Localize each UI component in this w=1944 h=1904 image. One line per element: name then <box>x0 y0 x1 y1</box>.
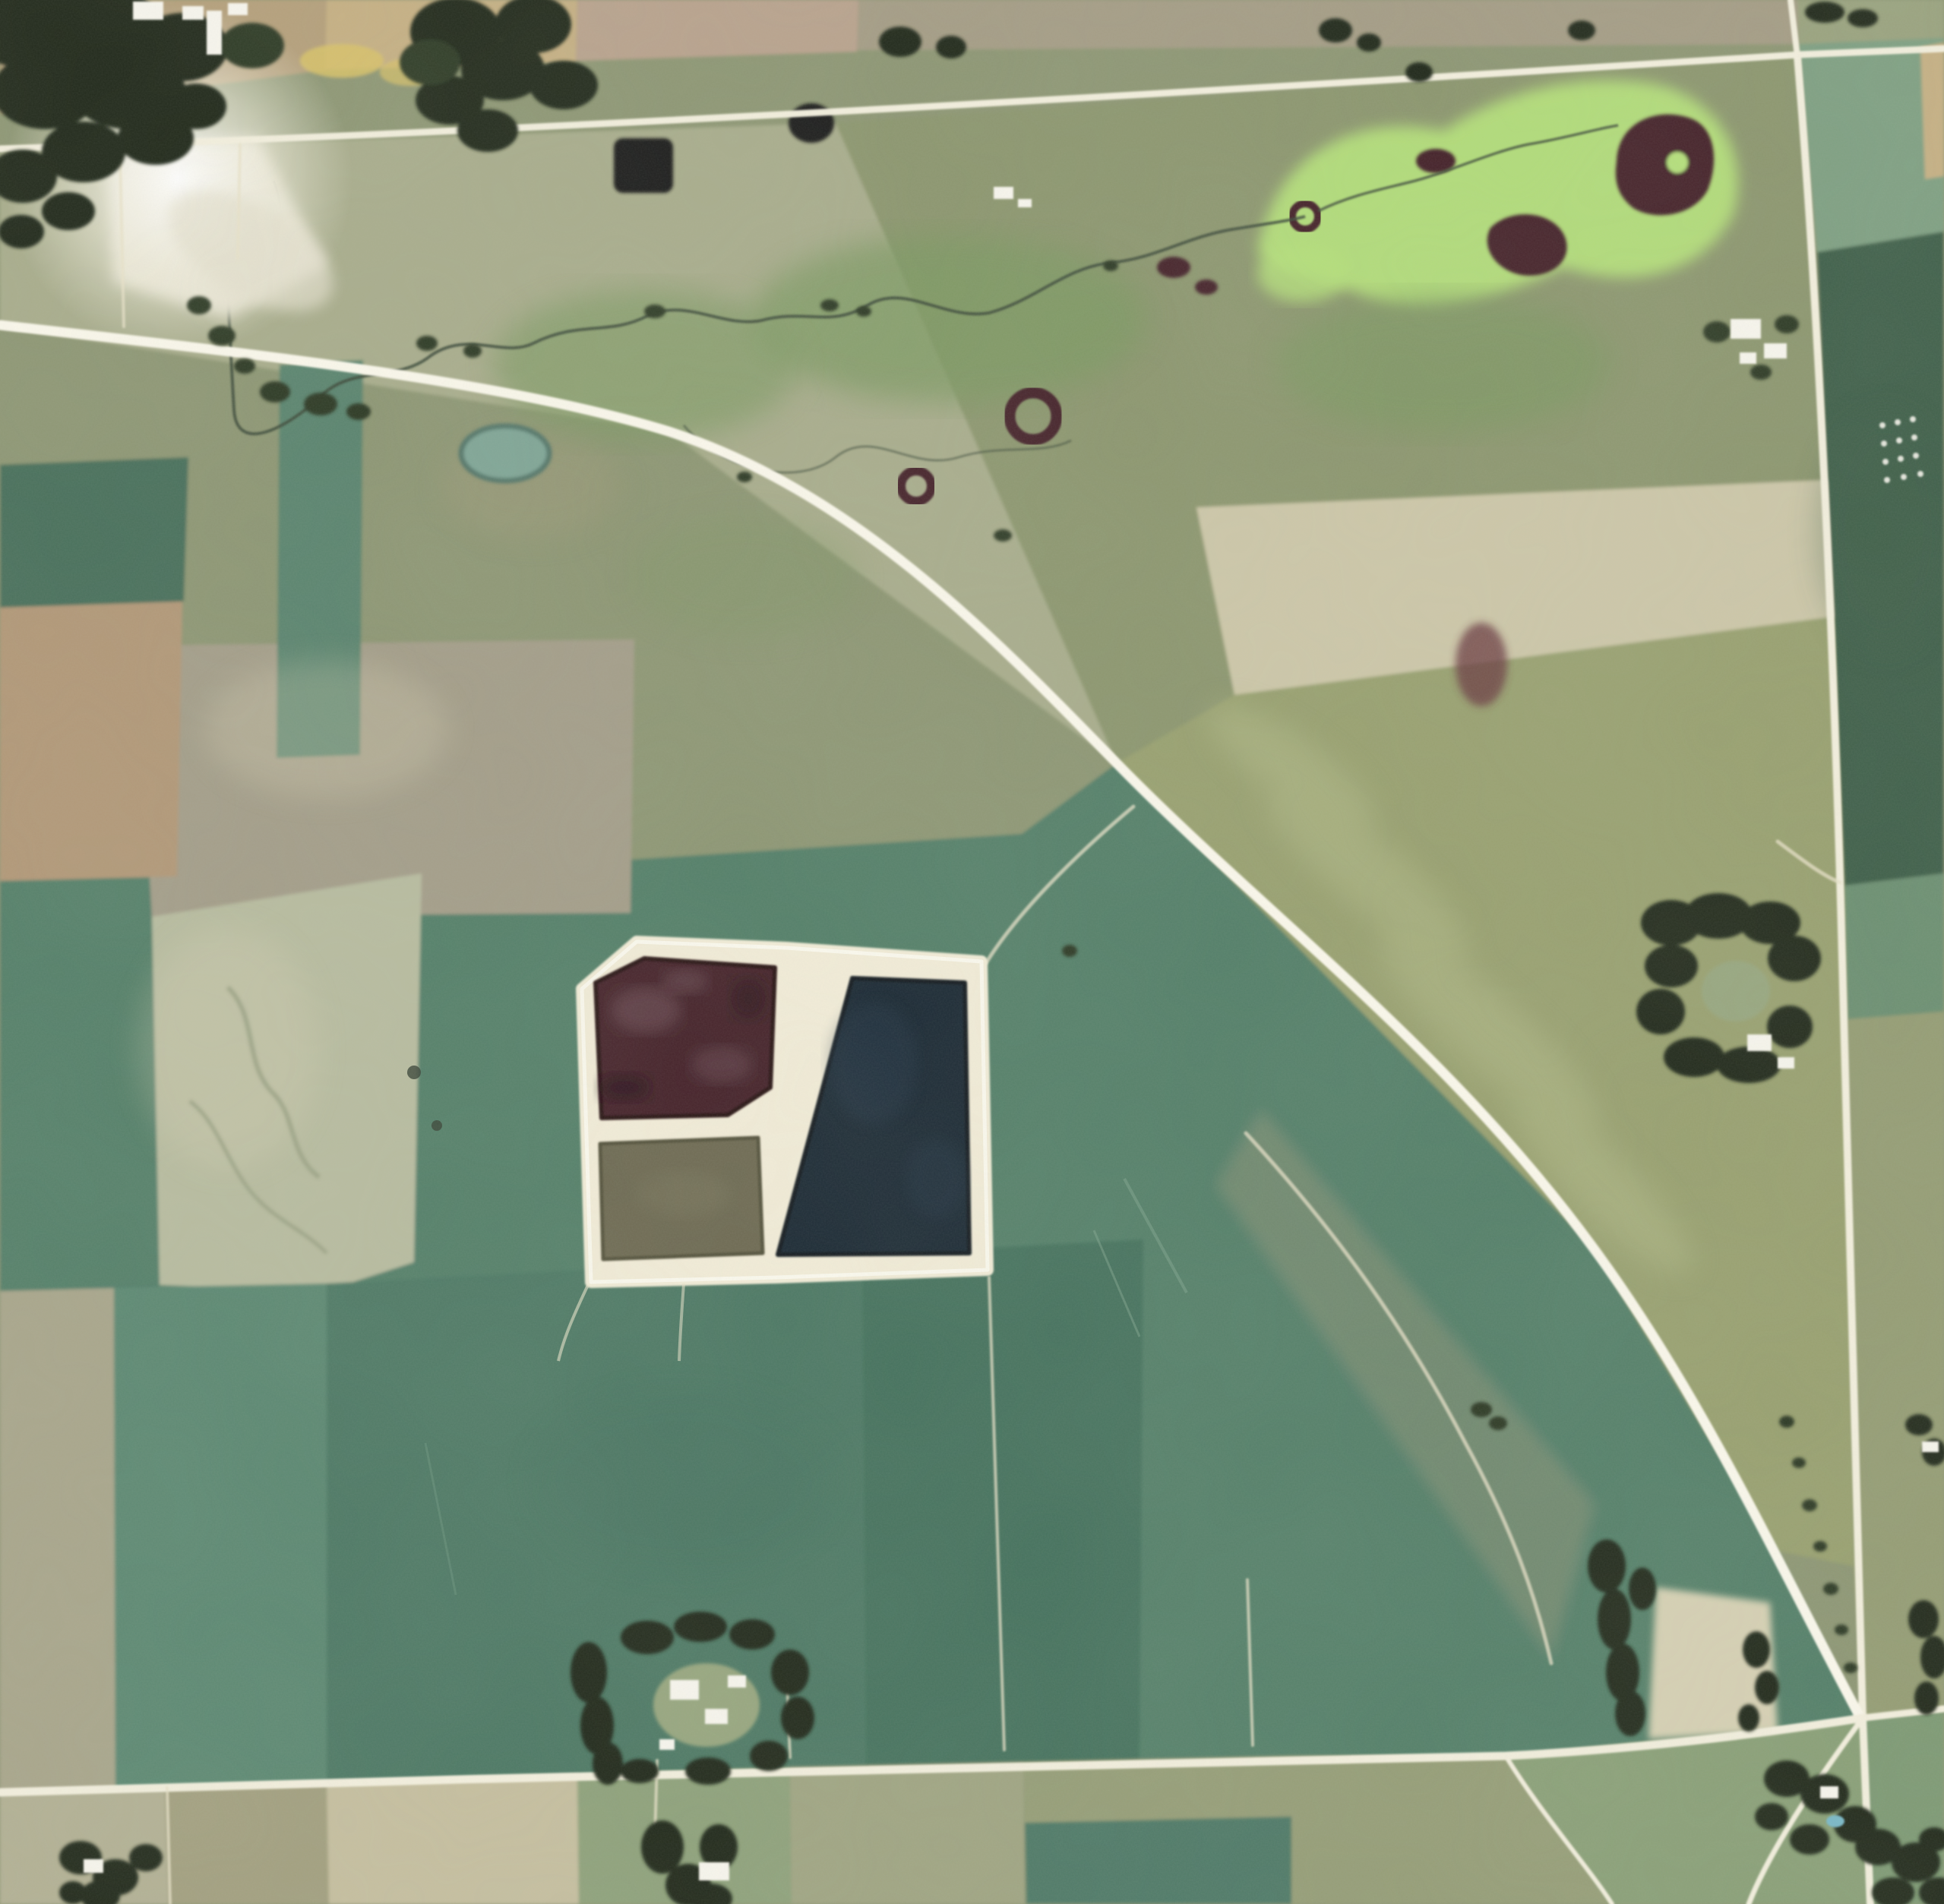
film-grain-overlay <box>0 0 1944 1904</box>
aerial-photo <box>0 0 1944 1904</box>
